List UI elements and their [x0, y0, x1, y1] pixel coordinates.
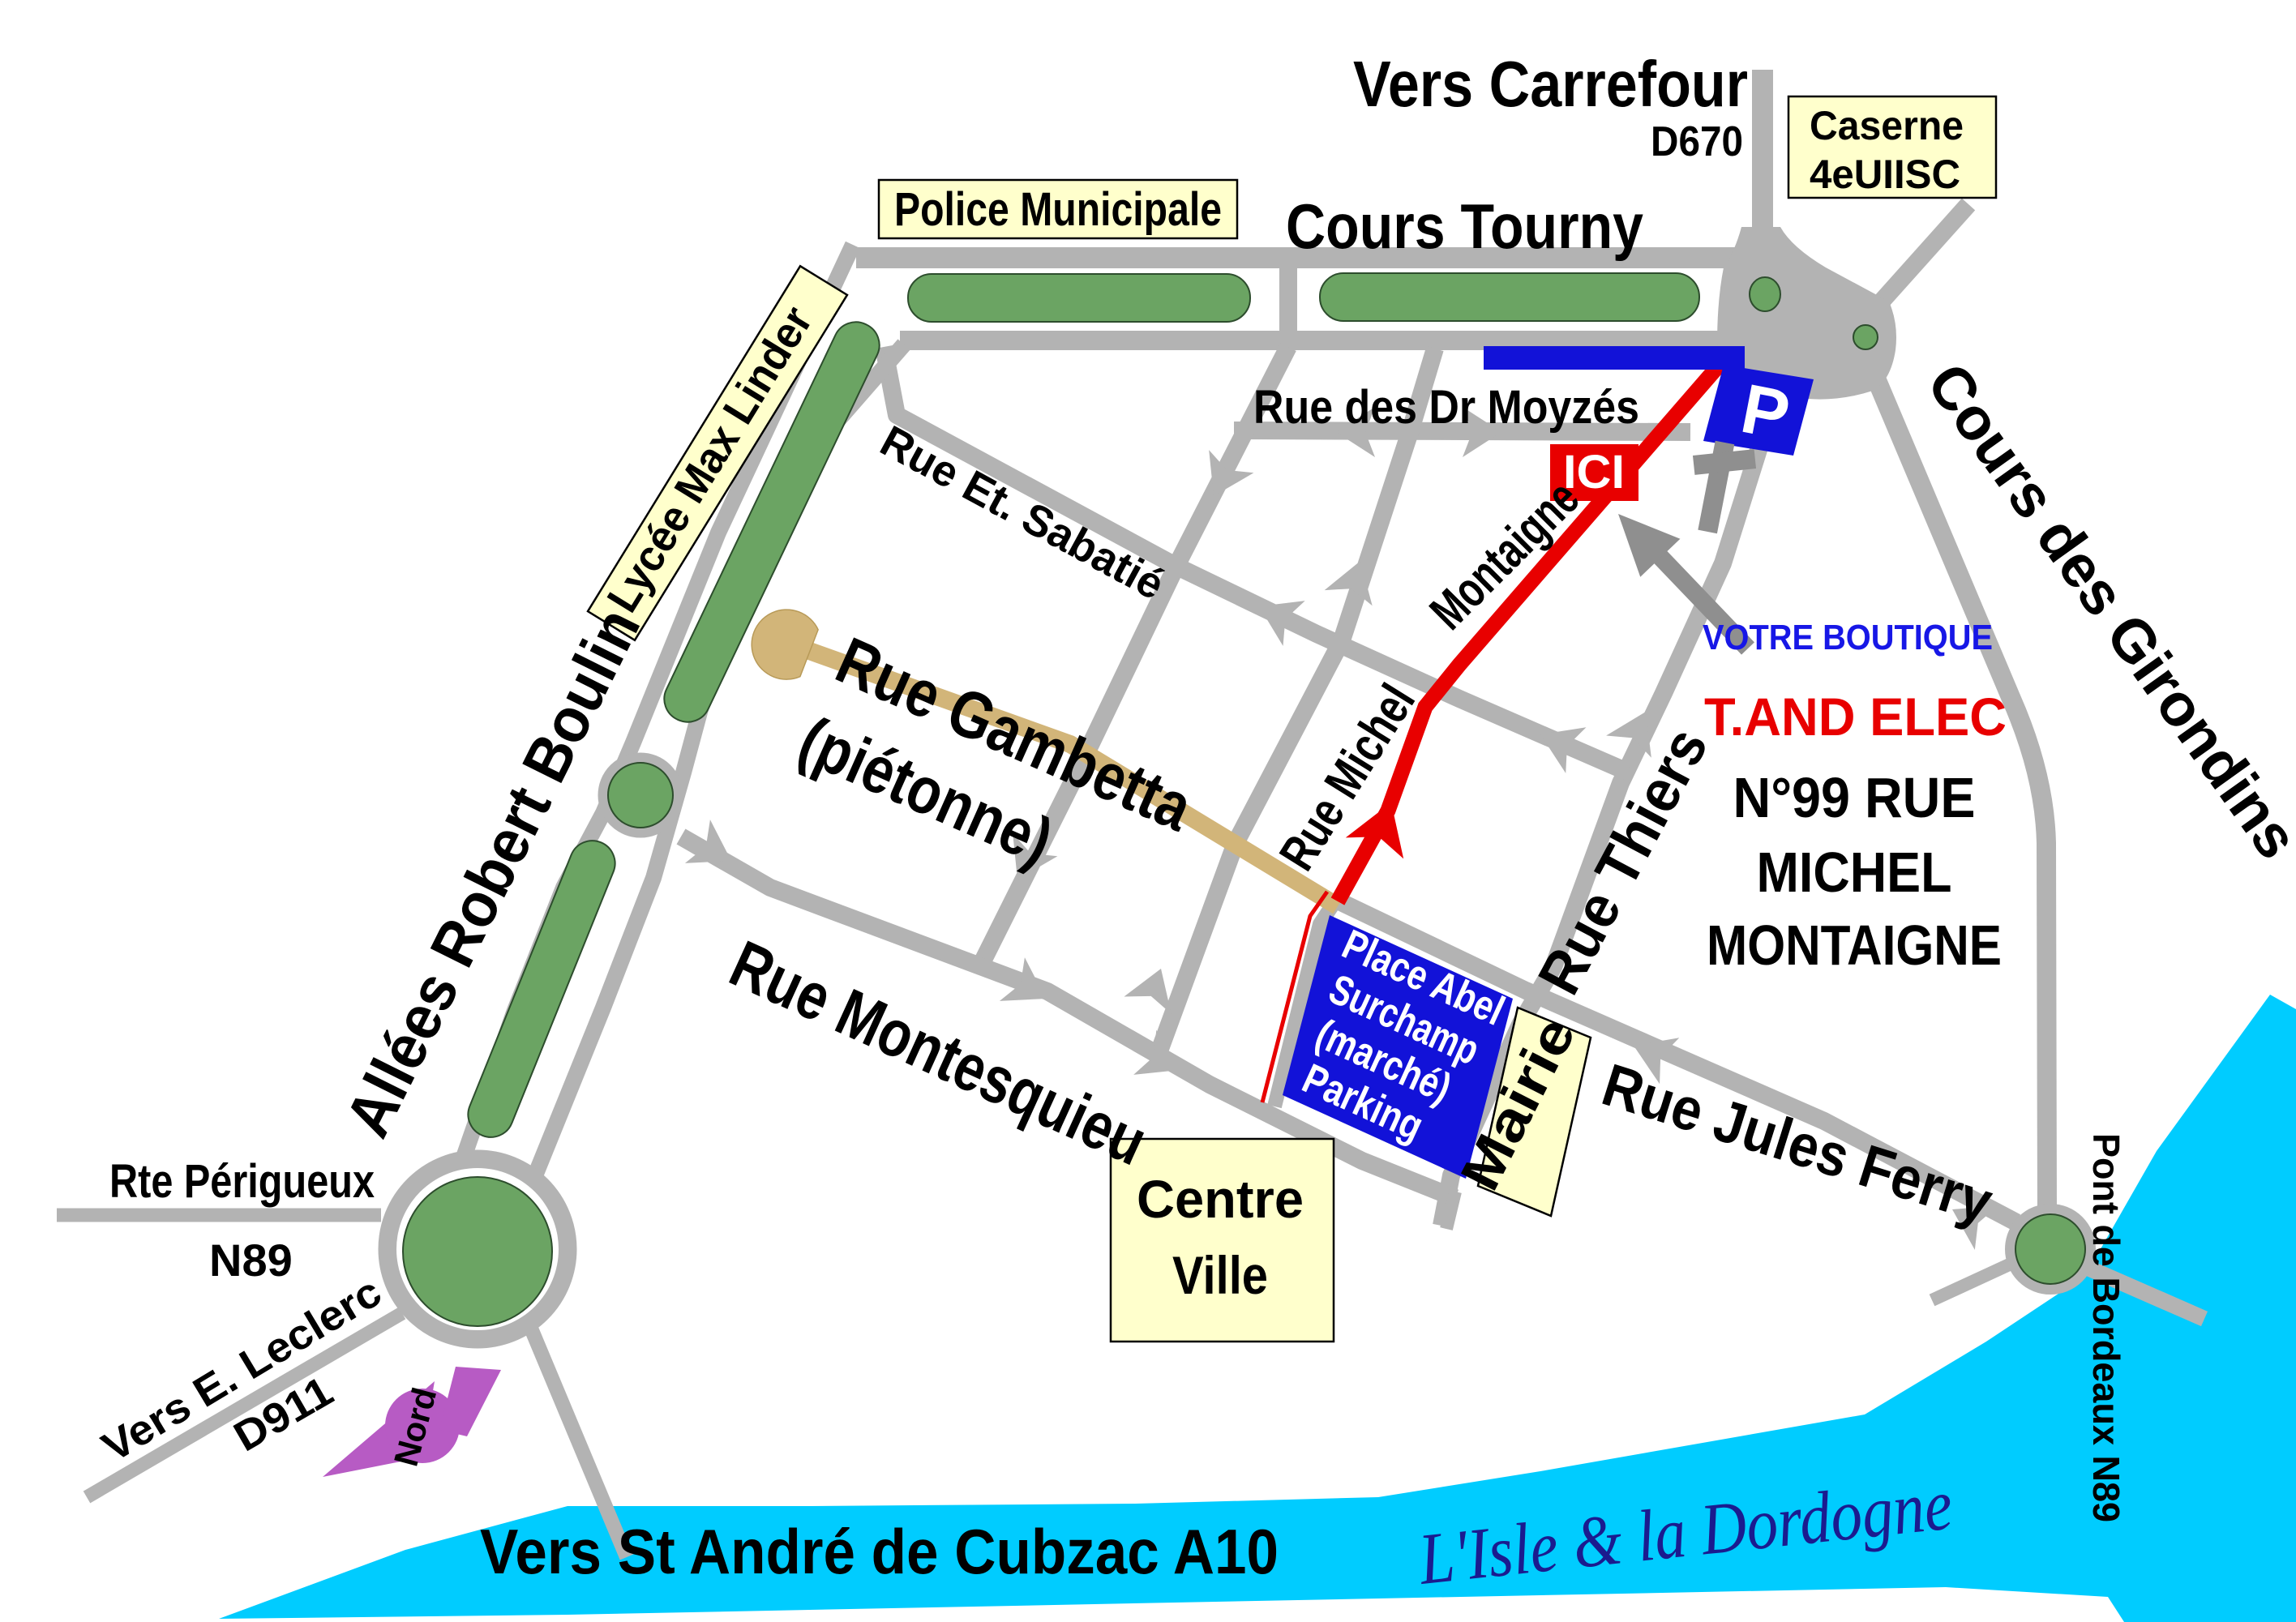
- svg-text:ICI: ICI: [1563, 446, 1625, 499]
- svg-text:Vers St André de Cubzac A10: Vers St André de Cubzac A10: [480, 1516, 1279, 1587]
- svg-text:Vers Carrefour: Vers Carrefour: [1353, 48, 1748, 120]
- svg-text:N89: N89: [209, 1235, 293, 1286]
- svg-text:Cours Tourny: Cours Tourny: [1286, 190, 1643, 262]
- svg-text:Rte Périgueux: Rte Périgueux: [109, 1155, 375, 1208]
- svg-text:Pont de Bordeaux N89: Pont de Bordeaux N89: [2085, 1133, 2127, 1522]
- svg-text:Rue des Dr Moyzés: Rue des Dr Moyzés: [1253, 381, 1639, 434]
- svg-text:T.AND ELEC: T.AND ELEC: [1704, 687, 2007, 747]
- svg-text:D670: D670: [1651, 118, 1743, 165]
- svg-text:Police Municipale: Police Municipale: [894, 183, 1222, 236]
- svg-text:VOTRE BOUTIQUE: VOTRE BOUTIQUE: [1703, 618, 1993, 657]
